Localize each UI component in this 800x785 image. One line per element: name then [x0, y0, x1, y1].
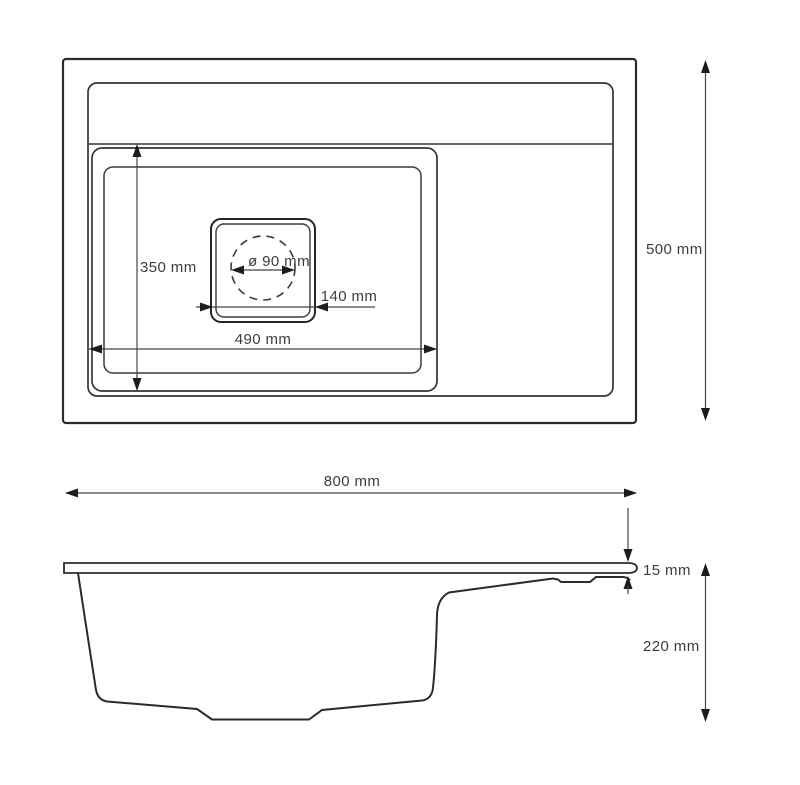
dim-rim-thickness-label: 15 mm	[643, 562, 691, 579]
dim-bowl-length-arrow-left-icon	[89, 345, 102, 354]
dim-drain-diameter-arrow-left-icon	[231, 266, 244, 275]
dim-overall-depth-arrow-up-icon	[701, 60, 710, 73]
dim-bowl-height-arrow-down-icon	[701, 709, 710, 722]
top-view: 350 mm ø 90 mm 140 mm 490 mm 500 mm	[63, 59, 710, 423]
side-view-body-profile	[78, 573, 630, 720]
dim-overall-width-arrow-right-icon	[624, 489, 637, 498]
dim-drain-width-label: 140 mm	[321, 288, 378, 305]
dim-overall-depth-arrow-down-icon	[701, 408, 710, 421]
sink-drawing-svg: 350 mm ø 90 mm 140 mm 490 mm 500 mm 800 …	[0, 0, 800, 785]
dim-drain-diameter-label: ø 90 mm	[248, 253, 310, 270]
side-view-rim-flange	[64, 563, 637, 573]
dim-bowl-depth-arrow-down-icon	[133, 378, 142, 391]
dim-bowl-depth-arrow-up-icon	[133, 144, 142, 157]
dim-bowl-height-label: 220 mm	[643, 638, 700, 655]
dim-rim-thickness-arrow-down-icon	[624, 549, 633, 562]
dim-overall-width-label: 800 mm	[324, 473, 381, 490]
dim-bowl-depth-label: 350 mm	[140, 259, 197, 276]
dim-bowl-length-arrow-right-icon	[424, 345, 437, 354]
dim-bowl-length-label: 490 mm	[235, 331, 292, 348]
dim-overall-depth-label: 500 mm	[646, 241, 703, 258]
technical-drawing-canvas: 350 mm ø 90 mm 140 mm 490 mm 500 mm 800 …	[0, 0, 800, 785]
dim-bowl-height-arrow-up-icon	[701, 563, 710, 576]
dim-overall-width-arrow-left-icon	[65, 489, 78, 498]
side-view: 800 mm 15 mm 220 mm	[64, 473, 710, 722]
top-view-outer-outline	[63, 59, 636, 423]
